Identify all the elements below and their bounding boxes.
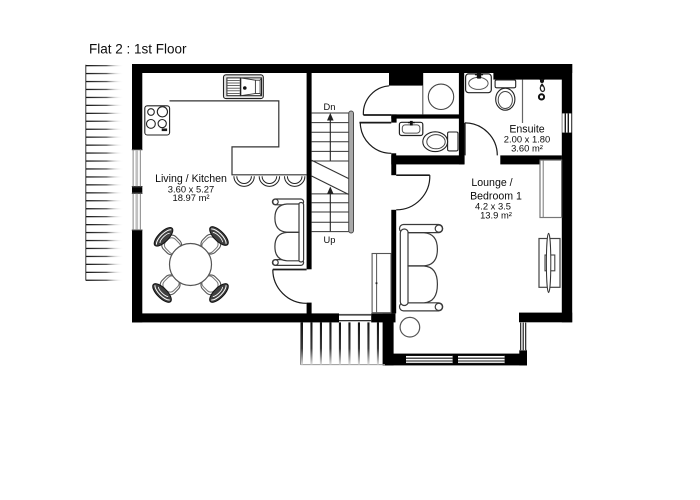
svg-text:13.9 m²: 13.9 m²: [480, 209, 512, 220]
svg-text:18.97 m²: 18.97 m²: [173, 192, 210, 203]
svg-text:Up: Up: [324, 235, 336, 245]
svg-text:Lounge /: Lounge /: [471, 177, 512, 189]
svg-text:3.60 m²: 3.60 m²: [511, 143, 543, 154]
svg-text:Flat 2 : 1st Floor: Flat 2 : 1st Floor: [89, 42, 187, 57]
svg-text:Dn: Dn: [324, 102, 336, 112]
